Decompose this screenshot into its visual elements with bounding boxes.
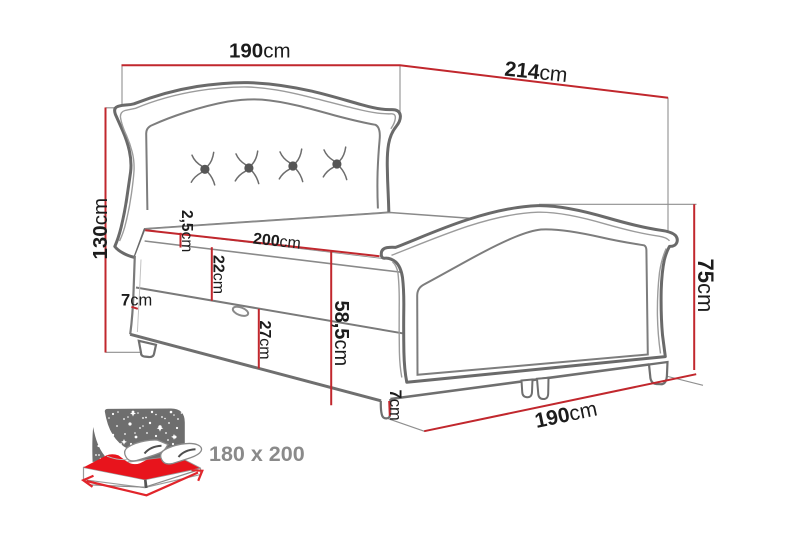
svg-text:130cm: 130cm — [89, 198, 112, 260]
svg-text:2,5cm: 2,5cm — [178, 210, 195, 252]
svg-text:27cm: 27cm — [256, 321, 273, 360]
svg-text:180 x 200: 180 x 200 — [209, 442, 305, 466]
svg-text:7cm: 7cm — [386, 390, 404, 421]
svg-text:75cm: 75cm — [693, 259, 718, 313]
svg-text:22cm: 22cm — [210, 255, 227, 294]
svg-text:214cm: 214cm — [503, 58, 568, 87]
svg-text:190cm: 190cm — [229, 40, 291, 63]
svg-text:7cm: 7cm — [121, 292, 152, 310]
svg-text:190cm: 190cm — [533, 397, 599, 432]
svg-text:58,5cm: 58,5cm — [330, 301, 352, 367]
